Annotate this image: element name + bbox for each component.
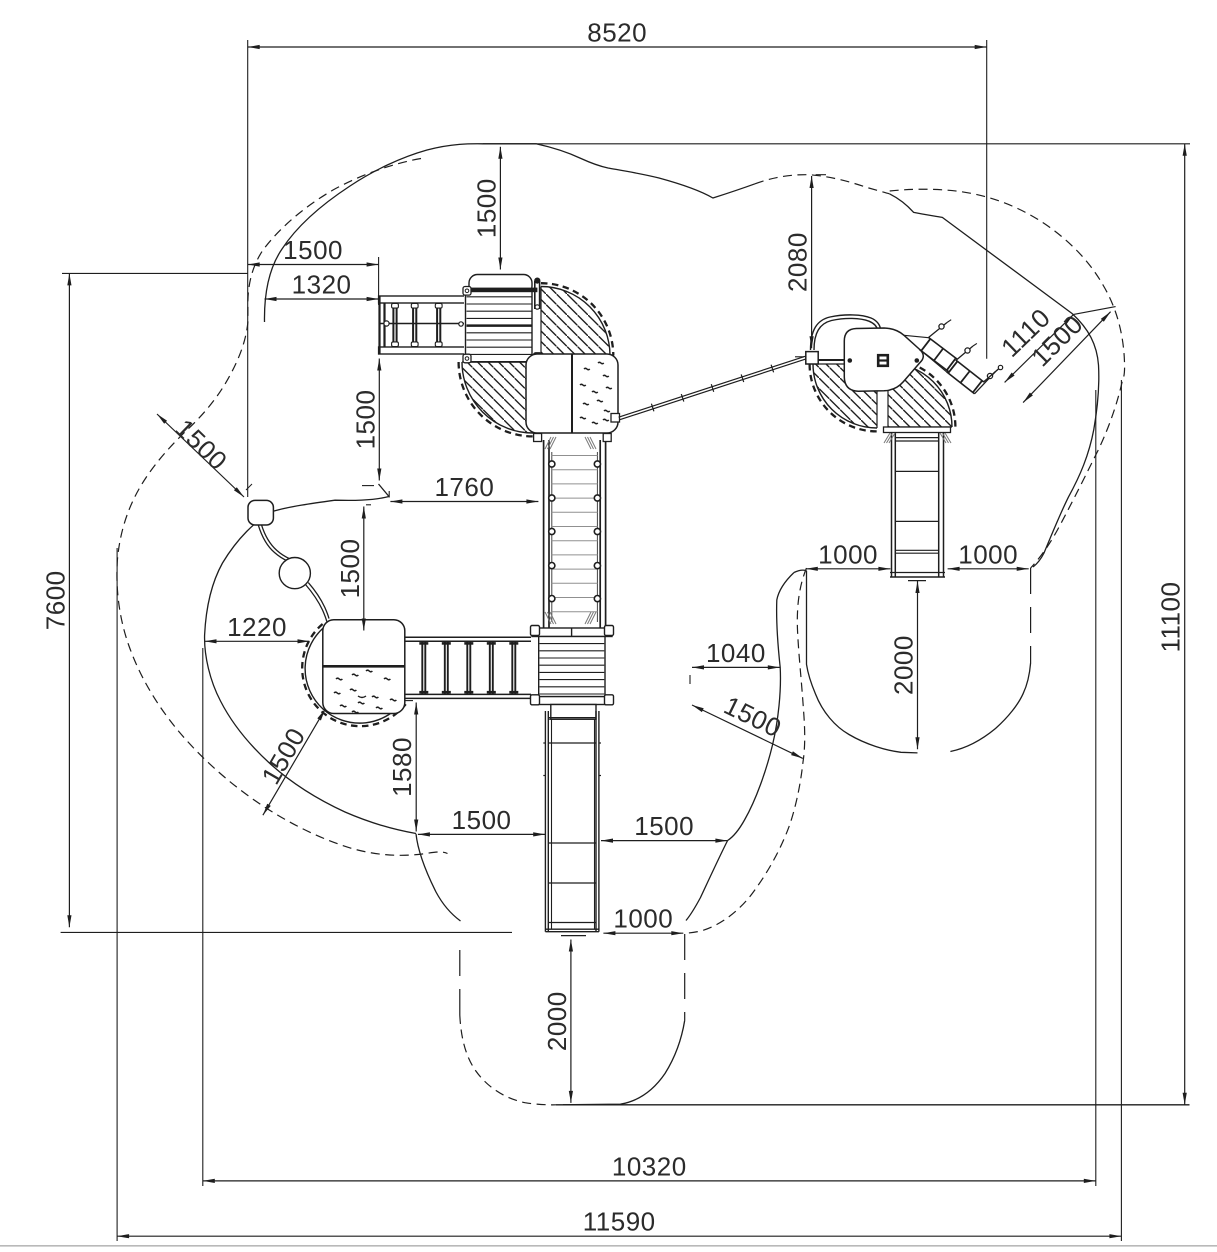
svg-text:1220: 1220 [227,612,287,642]
svg-text:2000: 2000 [542,991,572,1051]
svg-text:1500: 1500 [471,178,501,238]
svg-text:11590: 11590 [583,1207,656,1237]
svg-text:2080: 2080 [783,232,813,292]
svg-text:1000: 1000 [818,539,878,569]
svg-text:1500: 1500 [452,805,512,835]
svg-text:1760: 1760 [434,472,494,502]
svg-text:1580: 1580 [387,737,417,797]
svg-text:10320: 10320 [612,1151,687,1181]
svg-text:1500: 1500 [350,390,380,450]
svg-text:1500: 1500 [634,811,694,841]
svg-text:2000: 2000 [889,635,919,695]
svg-text:1040: 1040 [706,638,766,668]
svg-text:1000: 1000 [613,904,673,934]
svg-text:1320: 1320 [292,270,352,300]
svg-text:1500: 1500 [283,235,343,265]
svg-text:1500: 1500 [335,539,365,599]
svg-text:11100: 11100 [1156,582,1186,653]
svg-text:8520: 8520 [587,18,647,48]
svg-text:7600: 7600 [40,570,70,630]
svg-text:1000: 1000 [958,539,1018,569]
